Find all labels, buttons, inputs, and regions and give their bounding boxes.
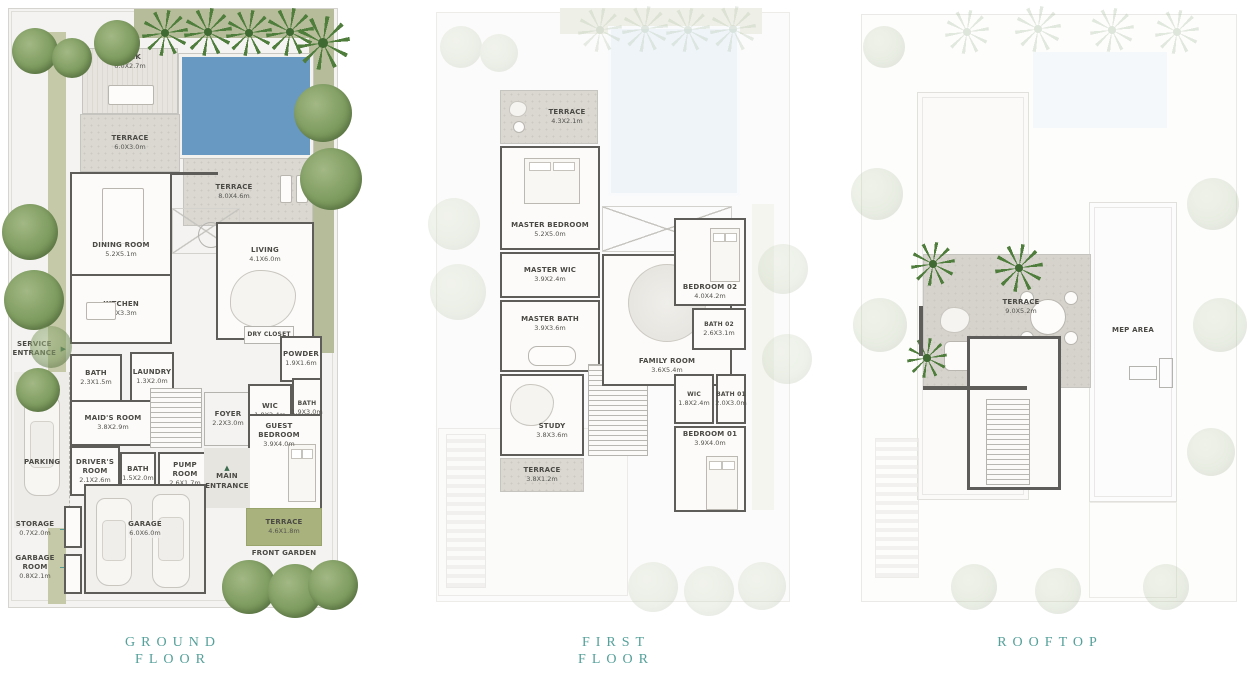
first-floor-title: FIRST FLOOR [432,634,800,668]
room-terrace-front: TERRACE4.6X1.8m [246,508,322,546]
room-label: FAMILY ROOM3.6X5.4m [639,357,695,375]
rooftop-title: ROOFTOP [855,634,1245,651]
armchair [940,307,970,333]
tree-icon [1035,568,1081,614]
tree-icon [851,168,903,220]
room-bath-02: BATH 022.6X3.1m [692,308,746,350]
tree-icon [951,564,997,610]
staircase [986,399,1030,485]
tree-icon [12,28,58,74]
room-master-bath: MASTER BATH3.9X3.6m [500,300,600,372]
pillow [553,162,574,171]
main-entrance-label: MAIN ENTRANCE [204,472,250,490]
room-label: TERRACE9.0X5.2m [1002,298,1039,316]
planter [509,101,527,117]
pool-below [1033,52,1167,128]
tree-icon [762,334,812,384]
swimming-pool [179,54,313,158]
vent-unit [1129,366,1157,380]
tree-icon [480,34,518,72]
room-label: GARBAGE ROOM0.8X2.1m [12,554,58,581]
room-storage [64,506,82,548]
room-label: PARKING [24,458,60,467]
room-label: BEDROOM 013.9X4.0m [683,430,737,448]
palm-tree-icon [578,8,622,52]
tree-icon [1187,178,1239,230]
room-label: LAUNDRY1.3X2.0m [133,368,172,386]
room-label: MAID'S ROOM3.8X2.9m [85,414,142,432]
room-label: STUDY3.8X3.6m [536,422,567,440]
front-garden-label: FRONT GARDEN [244,548,324,560]
room-label: DINING ROOM5.2X5.1m [92,241,149,259]
room-label: MASTER WIC3.9X2.4m [524,266,576,284]
tree-icon [308,560,358,610]
room-label: TERRACE4.3X2.1m [548,108,585,126]
title-line: ROOFTOP [855,634,1245,651]
room-label: BATH 012.0X3.0m [715,391,746,407]
room-master-bedroom: MASTER BEDROOM5.2X5.0m [500,146,600,250]
bed [706,456,738,510]
title-line: GROUND [8,634,338,651]
room-living: LIVING4.1X6.0m [216,222,314,340]
room-bedroom-02: BEDROOM 024.0X4.2m [674,218,746,306]
tree-icon [16,368,60,412]
ground-floor-plan: DECK6.0X2.7m TERRACE6.0X3.0m TERRACE8.0X… [8,8,338,608]
trellis [875,438,919,578]
room-terrace-first: TERRACE4.3X2.1m [500,90,598,144]
palm-tree-icon [907,338,947,378]
stair-block [967,336,1061,490]
room-maids: MAID'S ROOM3.8X2.9m [70,400,156,446]
pillow [713,233,725,243]
pillow [709,461,722,471]
pillow [529,162,550,171]
desk [510,384,554,426]
palm-tree-icon [1090,8,1134,52]
palm-tree-icon [995,244,1043,292]
room-powder: POWDER1.9X1.6m [280,336,322,382]
room-study: STUDY3.8X3.6m [500,374,584,456]
pillow [722,461,735,471]
room-guest-bedroom: GUEST BEDROOM3.9X4.0m [248,414,322,512]
room-wic-first: WIC1.8X2.4m [674,374,714,424]
title-line: FLOOR [8,651,338,668]
tree-icon [4,270,64,330]
wall-segment [923,386,1027,390]
palm-tree-icon [1155,10,1199,54]
room-garbage [64,554,82,594]
tree-icon [863,26,905,68]
room-label: LIVING4.1X6.0m [249,246,280,264]
lounger [280,175,292,203]
tree-icon [1187,428,1235,476]
room-label: FOYER2.2X3.0m [212,410,243,428]
tree-icon [300,148,362,210]
room-label: TERRACE6.0X3.0m [111,134,148,152]
tree-icon [1193,298,1247,352]
tree-icon [428,198,480,250]
room-bath-01: BATH 012.0X3.0m [716,374,746,424]
dining-table [102,188,144,244]
mep-area: MEP AREA [1089,324,1177,338]
room-label: TERRACE3.8X1.2m [523,466,560,484]
room-terrace-small: TERRACE3.8X1.2m [500,458,584,492]
bed [524,158,580,204]
room-bath-a: BATH2.3X1.5m [70,354,122,402]
seat [1064,331,1078,345]
palm-tree-icon [622,6,668,52]
tree-icon [294,84,352,142]
roof-outline-right [1089,202,1177,502]
tree-icon [2,204,58,260]
storage-label: STORAGE0.7X2.0m [12,518,58,540]
tree-icon [628,562,678,612]
palm-tree-icon [142,10,188,56]
garbage-label: GARBAGE ROOM0.8X2.1m [12,556,58,578]
tree-icon [52,38,92,78]
room-label: TERRACE4.6X1.8m [265,518,302,536]
tree-icon [758,244,808,294]
bed [288,444,316,502]
room-terrace-top: TERRACE6.0X3.0m [80,114,180,172]
palm-tree-icon [911,242,955,286]
title-line: FLOOR [432,651,800,668]
room-label: BATH2.3X1.5m [80,369,111,387]
tree-icon [853,298,907,352]
title-line: FIRST [432,634,800,651]
room-garage: GARAGE6.0X6.0m [84,484,206,594]
tree-icon [440,26,482,68]
pool-below [608,26,740,196]
ground-floor-title: GROUND FLOOR [8,634,338,668]
bathtub [528,346,576,366]
tree-icon [30,326,72,368]
first-floor-plan: TERRACE4.3X2.1m MASTER BEDROOM5.2X5.0m M… [432,8,800,608]
tree-icon [684,566,734,616]
tree-icon [430,264,486,320]
room-label: BATH 022.6X3.1m [703,321,734,337]
wall-segment [919,306,923,356]
vent-unit [1159,358,1173,388]
tree-icon [738,562,786,610]
room-label: STORAGE0.7X2.0m [16,520,55,538]
roof-outline-inner [1094,207,1172,497]
bed [710,228,740,282]
room-label: TERRACE8.0X4.6m [215,183,252,201]
room-label: GARAGE6.0X6.0m [128,520,162,538]
room-label: BEDROOM 024.0X4.2m [683,283,737,301]
tree-icon [94,20,140,66]
seat [1064,291,1078,305]
room-label: GUEST BEDROOM3.9X4.0m [244,422,314,449]
palm-tree-icon [296,16,350,70]
planter [513,121,525,133]
tree-icon [1143,564,1189,610]
room-label: POWDER1.9X1.6m [283,350,319,368]
room-label: BATH1.5X2.0m [122,465,153,483]
kitchen-island [86,302,116,320]
arrow-up-icon: ▲ [224,465,229,472]
car [96,498,132,586]
pillow [302,449,313,459]
palm-tree-icon [184,8,232,56]
room-label: MEP AREA [1112,326,1154,335]
room-label: MASTER BATH3.9X3.6m [521,315,579,333]
wall-segment [172,172,218,175]
car [152,494,190,588]
palm-tree-icon [945,10,989,54]
room-label: WIC1.8X2.4m [678,391,709,407]
sofa [230,270,296,328]
pillow [725,233,737,243]
rooftop-plan: TERRACE9.0X5.2m MEP AREA [855,8,1245,608]
floor-plans-sheet: DECK6.0X2.7m TERRACE6.0X3.0m TERRACE8.0X… [0,0,1249,673]
room-label: MASTER BEDROOM5.2X5.0m [511,221,589,239]
palm-tree-icon [1015,6,1061,52]
main-entrance: ▲ MAIN ENTRANCE [204,448,250,508]
room-master-wic: MASTER WIC3.9X2.4m [500,252,600,298]
car-roof [102,520,127,561]
room-label: DRIVER'S ROOM2.1X2.6m [72,458,118,485]
room-bedroom-01: BEDROOM 013.9X4.0m [674,426,746,512]
palm-tree-icon [666,8,710,52]
room-label: FRONT GARDEN [252,549,317,558]
palm-tree-icon [710,6,756,52]
trellis [446,434,486,588]
room-dining: DINING ROOM5.2X5.1m [70,172,172,276]
deck-table [108,85,154,105]
staircase [150,388,202,448]
room-kitchen: KITCHEN5.2X3.3m [70,274,172,344]
